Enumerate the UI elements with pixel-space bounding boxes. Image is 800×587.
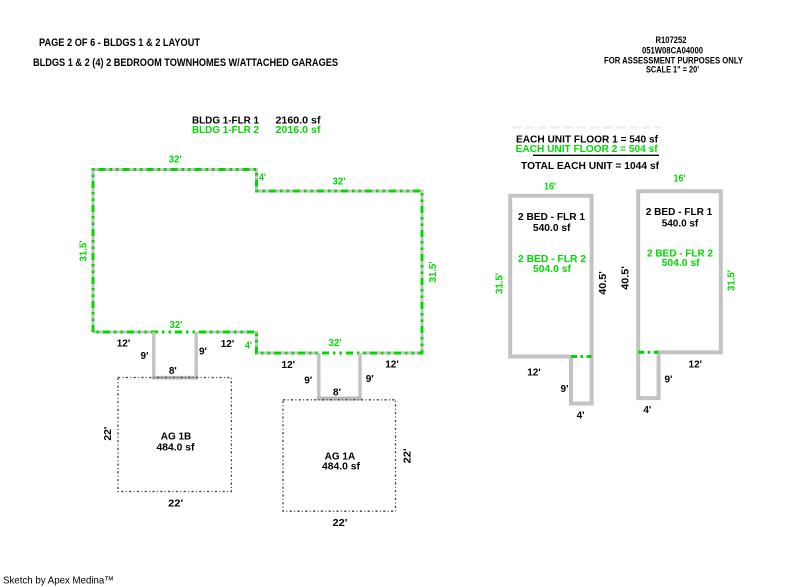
svg-text:32': 32' <box>170 320 183 331</box>
svg-text:16': 16' <box>544 181 556 192</box>
svg-text:2016.0 sf: 2016.0 sf <box>276 125 322 136</box>
svg-text:40.5': 40.5' <box>598 271 609 295</box>
svg-text:8': 8' <box>169 366 177 377</box>
svg-text:504.0 sf: 504.0 sf <box>662 258 701 269</box>
svg-text:PAGE 2 OF 6 - BLDGS 1 & 2 LAYO: PAGE 2 OF 6 - BLDGS 1 & 2 LAYOUT <box>39 37 200 49</box>
svg-text:22': 22' <box>103 427 114 441</box>
svg-text:4': 4' <box>577 411 585 422</box>
svg-text:4': 4' <box>643 405 651 416</box>
svg-text:31.5': 31.5' <box>428 262 439 283</box>
svg-text:12': 12' <box>221 339 235 350</box>
svg-text:32': 32' <box>329 338 342 349</box>
svg-text:2 BED - FLR 1: 2 BED - FLR 1 <box>646 207 713 218</box>
svg-text:16': 16' <box>674 174 686 185</box>
svg-text:12': 12' <box>689 360 703 371</box>
svg-text:8': 8' <box>333 388 341 399</box>
svg-text:051W08CA04000: 051W08CA04000 <box>642 46 703 56</box>
svg-text:R107252: R107252 <box>656 35 687 45</box>
svg-text:504.0 sf: 504.0 sf <box>533 264 572 275</box>
svg-text:484.0 sf: 484.0 sf <box>157 442 196 453</box>
svg-text:22': 22' <box>403 448 414 463</box>
svg-text:9': 9' <box>141 351 149 362</box>
svg-text:AG 1B: AG 1B <box>161 431 192 442</box>
svg-text:12': 12' <box>117 338 131 349</box>
svg-text:9': 9' <box>366 374 374 385</box>
svg-text:12': 12' <box>527 367 541 378</box>
svg-text:EACH UNIT FLOOR 2 = 504 sf: EACH UNIT FLOOR 2 = 504 sf <box>516 144 659 155</box>
svg-text:22': 22' <box>333 518 348 529</box>
svg-text:31.5': 31.5' <box>727 270 738 291</box>
svg-text:2 BED - FLR 1: 2 BED - FLR 1 <box>518 212 585 223</box>
svg-text:32': 32' <box>169 154 182 165</box>
svg-text:TOTAL EACH UNIT = 1044 sf: TOTAL EACH UNIT = 1044 sf <box>521 161 660 172</box>
svg-text:SCALE 1" = 20': SCALE 1" = 20' <box>646 64 699 74</box>
svg-text:12': 12' <box>385 359 399 370</box>
svg-text:9': 9' <box>199 346 207 357</box>
svg-text:Sketch by Apex Medina™: Sketch by Apex Medina™ <box>3 574 114 586</box>
svg-text:12': 12' <box>282 360 296 371</box>
svg-text:22': 22' <box>168 498 183 509</box>
svg-text:540.0 sf: 540.0 sf <box>533 223 571 234</box>
svg-text:32': 32' <box>333 176 346 187</box>
svg-text:4': 4' <box>259 172 266 183</box>
svg-text:9': 9' <box>304 375 312 386</box>
svg-text:484.0 sf: 484.0 sf <box>322 462 361 473</box>
svg-text:540.0 sf: 540.0 sf <box>662 218 699 229</box>
svg-text:31.5': 31.5' <box>79 241 90 262</box>
svg-text:BLDGS 1 & 2 (4) 2 BEDROOM TOWN: BLDGS 1 & 2 (4) 2 BEDROOM TOWNHOMES W/AT… <box>33 57 338 69</box>
svg-text:31.5': 31.5' <box>495 273 506 294</box>
svg-text:40.5': 40.5' <box>621 266 632 290</box>
svg-text:4': 4' <box>245 341 252 352</box>
svg-text:9': 9' <box>561 384 569 395</box>
svg-text:BLDG 1-FLR 2: BLDG 1-FLR 2 <box>192 125 259 136</box>
svg-text:9': 9' <box>665 374 673 385</box>
